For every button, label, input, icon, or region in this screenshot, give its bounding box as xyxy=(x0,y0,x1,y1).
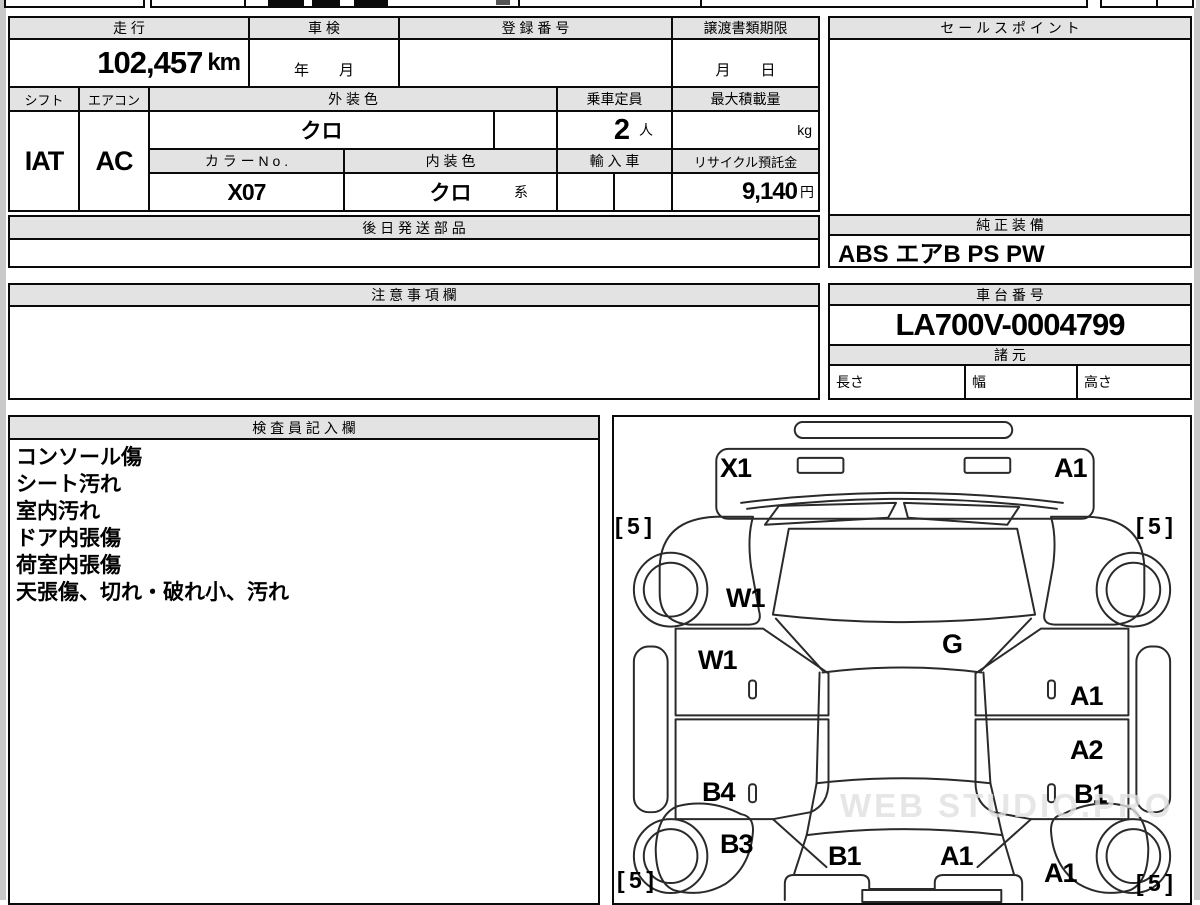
capacity-value-cell: 2 人 xyxy=(558,112,673,150)
damage-code-label: A1 xyxy=(1054,453,1087,484)
interior-color-suffix: 系 xyxy=(514,182,528,202)
exterior-color-value-cell: クロ xyxy=(150,112,495,150)
chassis-section: 車 台 番 号 LA700V-0004799 諸 元 長さ 幅 高さ xyxy=(828,283,1192,400)
inspector-section: 検 査 員 記 入 欄 コンソール傷 シート汚れ 室内汚れ ドア内張傷 荷室内張… xyxy=(8,415,600,905)
spec-width-label: 幅 xyxy=(972,372,986,392)
damage-code-label: G xyxy=(942,629,962,660)
damage-code-label: [ 5 ] xyxy=(1136,513,1172,540)
capacity-unit: 人 xyxy=(639,120,653,140)
color-no-value-cell: X07 xyxy=(150,174,345,210)
recycle-label: リサイクル預託金 xyxy=(694,152,797,171)
capacity-value: 2 xyxy=(614,114,629,147)
recycle-value-cell: 9,140 円 xyxy=(673,174,818,210)
damage-code-label: W1 xyxy=(726,583,765,614)
shaken-value: 年 月 xyxy=(294,59,354,80)
import-value-cell-2 xyxy=(615,174,673,210)
genuine-equipment-label: 純 正 装 備 xyxy=(976,215,1044,235)
deadline-label: 譲渡書類期限 xyxy=(704,18,788,38)
interior-color-header: 内 装 色 xyxy=(345,150,558,174)
inspector-body: コンソール傷 シート汚れ 室内汚れ ドア内張傷 荷室内張傷 天張傷、切れ・破れ小… xyxy=(16,444,592,606)
notes-header: 注 意 事 項 欄 xyxy=(10,285,818,307)
interior-color-label: 内 装 色 xyxy=(426,151,476,171)
capacity-header: 乗車定員 xyxy=(558,88,673,112)
exterior-color-sub-cell xyxy=(495,112,558,150)
specs-label: 諸 元 xyxy=(994,345,1026,365)
shift-value: IAT xyxy=(25,146,64,177)
spec-length-cell: 長さ xyxy=(830,366,966,398)
inspector-header: 検 査 員 記 入 欄 xyxy=(10,417,598,440)
spec-width-cell: 幅 xyxy=(966,366,1078,398)
color-no-value: X07 xyxy=(228,179,266,206)
mileage-label: 走 行 xyxy=(113,18,145,38)
capacity-label: 乗車定員 xyxy=(587,89,643,109)
damage-labels-layer: X1A1[ 5 ][ 5 ]W1W1GA1A2B1B4B3B1A1A1[ 5 ]… xyxy=(614,417,1190,903)
registration-label: 登 録 番 号 xyxy=(502,18,570,38)
specs-header: 諸 元 xyxy=(830,344,1190,366)
later-parts-body xyxy=(10,240,818,266)
damage-code-label: A1 xyxy=(940,841,973,872)
shaken-value-cell: 年 月 xyxy=(250,40,400,88)
exterior-color-value: クロ xyxy=(301,115,343,145)
page-margin-right xyxy=(1194,0,1200,900)
color-no-header: カ ラ ー N o . xyxy=(150,150,345,174)
exterior-color-header: 外 装 色 xyxy=(150,88,558,112)
cutoff-row xyxy=(4,0,1196,8)
spec-height-cell: 高さ xyxy=(1078,366,1190,398)
page-margin-left xyxy=(0,0,6,900)
shift-label: シフト xyxy=(24,90,63,109)
mileage-value: 102,457 xyxy=(97,45,202,81)
color-no-label: カ ラ ー N o . xyxy=(205,151,288,171)
max-load-value-cell: kg xyxy=(673,112,818,150)
registration-header: 登 録 番 号 xyxy=(400,18,673,40)
damage-code-label: B3 xyxy=(720,829,753,860)
damage-code-label: B4 xyxy=(702,777,735,808)
import-header: 輸 入 車 xyxy=(558,150,673,174)
spec-height-label: 高さ xyxy=(1084,372,1112,392)
notes-body xyxy=(10,307,818,398)
damage-code-label: [ 5 ] xyxy=(615,513,651,540)
auction-sheet: { "sheet": { "top_table": { "mileage_lab… xyxy=(0,0,1200,900)
inspector-note: 室内汚れ xyxy=(16,498,592,525)
deadline-value-cell: 月 日 xyxy=(673,40,818,88)
max-load-unit: kg xyxy=(797,122,812,138)
damage-code-label: A1 xyxy=(1044,858,1077,889)
mileage-value-cell: 102,457 km xyxy=(10,40,250,88)
chassis-label: 車 台 番 号 xyxy=(976,285,1044,305)
damage-code-label: W1 xyxy=(698,645,737,676)
damage-code-label: [ 5 ] xyxy=(1136,870,1172,897)
aircon-header: エアコン xyxy=(80,88,150,112)
inspector-note: ドア内張傷 xyxy=(16,525,592,552)
import-value-cell-1 xyxy=(558,174,615,210)
import-label: 輸 入 車 xyxy=(590,151,640,171)
later-parts-header: 後 日 発 送 部 品 xyxy=(10,217,818,240)
mileage-header: 走 行 xyxy=(10,18,250,40)
damage-code-label: X1 xyxy=(720,453,751,484)
damage-code-label: [ 5 ] xyxy=(617,867,653,894)
inspector-note: 荷室内張傷 xyxy=(16,552,592,579)
shaken-label: 車 検 xyxy=(308,18,340,38)
recycle-unit: 円 xyxy=(800,182,814,202)
mileage-unit: km xyxy=(207,49,240,77)
recycle-value: 9,140 xyxy=(742,178,797,206)
spec-length-label: 長さ xyxy=(836,372,864,392)
damage-diagram: X1A1[ 5 ][ 5 ]W1W1GA1A2B1B4B3B1A1A1[ 5 ]… xyxy=(612,415,1192,905)
damage-code-label: A1 xyxy=(1070,681,1103,712)
watermark: WEB STUDIO.PRO xyxy=(840,787,1174,825)
shaken-header: 車 検 xyxy=(250,18,400,40)
later-parts-label: 後 日 発 送 部 品 xyxy=(362,218,465,238)
notes-label: 注 意 事 項 欄 xyxy=(371,285,457,305)
genuine-equipment-value-cell: ABS エアB PS PW xyxy=(830,236,1190,266)
interior-color-value-cell: クロ 系 xyxy=(345,174,558,210)
exterior-color-label: 外 装 色 xyxy=(328,89,378,109)
aircon-value: AC xyxy=(96,146,133,177)
shift-value-cell: IAT xyxy=(10,112,80,210)
shift-header: シフト xyxy=(10,88,80,112)
deadline-header: 譲渡書類期限 xyxy=(673,18,818,40)
chassis-header: 車 台 番 号 xyxy=(830,285,1190,306)
damage-code-label: B1 xyxy=(828,841,861,872)
notes-section: 注 意 事 項 欄 xyxy=(8,283,820,400)
max-load-header: 最大積載量 xyxy=(673,88,818,112)
inspector-note: コンソール傷 xyxy=(16,444,592,471)
inspector-note: 天張傷、切れ・破れ小、汚れ xyxy=(16,579,592,606)
max-load-label: 最大積載量 xyxy=(711,89,781,109)
inspector-note: シート汚れ xyxy=(16,471,592,498)
aircon-value-cell: AC xyxy=(80,112,150,210)
genuine-equipment-value: ABS エアB PS PW xyxy=(838,234,1045,269)
sales-point-panel: セ ー ル ス ポ イ ン ト 純 正 装 備 ABS エアB PS PW xyxy=(828,16,1192,268)
chassis-value-cell: LA700V-0004799 xyxy=(830,306,1190,344)
registration-value-cell xyxy=(400,40,673,88)
sales-point-body xyxy=(830,40,1190,214)
recycle-header: リサイクル預託金 xyxy=(673,150,818,174)
vehicle-info-table: 走 行 車 検 登 録 番 号 譲渡書類期限 102,457 km 年 月 月 … xyxy=(8,16,820,212)
interior-color-value: クロ xyxy=(430,177,472,207)
damage-code-label: A2 xyxy=(1070,735,1103,766)
chassis-value: LA700V-0004799 xyxy=(895,307,1124,343)
sales-point-label: セ ー ル ス ポ イ ン ト xyxy=(940,18,1079,38)
deadline-value: 月 日 xyxy=(715,59,775,80)
aircon-label: エアコン xyxy=(88,90,140,109)
inspector-label: 検 査 員 記 入 欄 xyxy=(252,418,355,438)
sales-point-header: セ ー ル ス ポ イ ン ト xyxy=(830,18,1190,40)
later-parts-section: 後 日 発 送 部 品 xyxy=(8,215,820,268)
